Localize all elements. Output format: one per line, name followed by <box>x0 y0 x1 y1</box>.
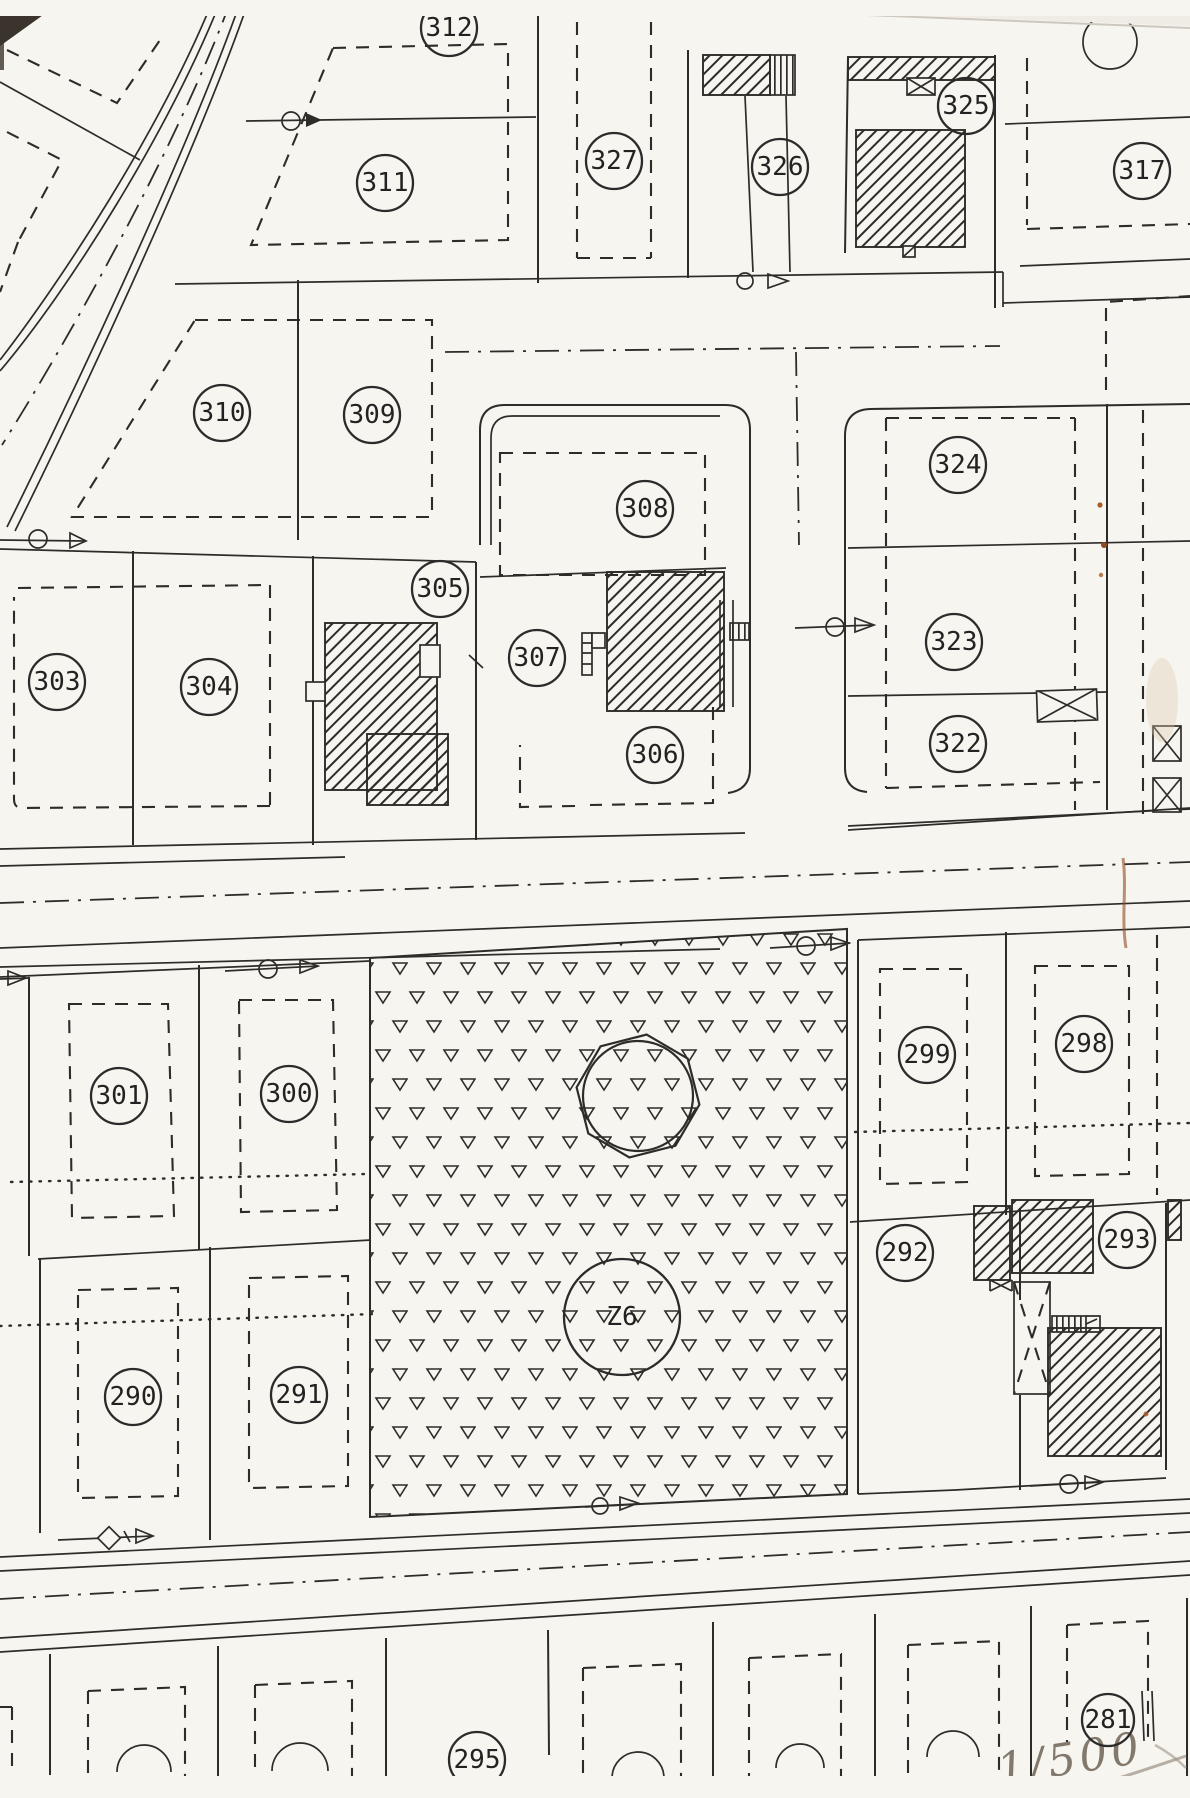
building-326 <box>703 55 795 95</box>
parcel-label-326: 326 <box>752 139 808 195</box>
svg-text:310: 310 <box>199 398 246 428</box>
parcel-label-325: 325 <box>938 78 994 134</box>
svg-text:293: 293 <box>1104 1225 1151 1255</box>
parcels-324-323-322 <box>848 404 1190 826</box>
parcel-label-324: 324 <box>930 437 986 493</box>
parcel-label-295: 295 <box>449 1732 505 1788</box>
parcels-299-298 <box>855 932 1190 1222</box>
parcel-outline-308 <box>500 453 705 575</box>
parcel-label-306: 306 <box>627 727 683 783</box>
triangle-pattern-area <box>370 929 847 1517</box>
svg-text:281: 281 <box>1085 1705 1132 1735</box>
survey-point-arrow <box>795 618 874 636</box>
building-large <box>1048 1328 1161 1456</box>
parcel-label-308: 308 <box>617 481 673 537</box>
crossed-box-icon <box>1153 778 1181 812</box>
survey-point-arrow <box>0 971 30 985</box>
diagonal-road <box>0 0 249 531</box>
svg-text:301: 301 <box>96 1081 143 1111</box>
parcel-label-312: 312 <box>421 0 477 56</box>
corner-mark-icon <box>903 246 915 257</box>
survey-point-arrow <box>1030 1475 1103 1493</box>
stairs-icon <box>582 633 605 675</box>
cadastral-map-sheet: 1/500 3123113273263253173103093083243053… <box>0 0 1190 1798</box>
svg-text:305: 305 <box>417 574 464 604</box>
building-small <box>974 1206 1010 1280</box>
svg-text:327: 327 <box>591 146 638 176</box>
svg-text:326: 326 <box>757 152 804 182</box>
survey-diamond-arrow <box>58 1527 153 1550</box>
svg-text:290: 290 <box>110 1382 157 1412</box>
parcel-label-307: 307 <box>509 630 565 686</box>
svg-text:306: 306 <box>632 740 679 770</box>
crossed-box-icon <box>907 78 935 95</box>
crossed-box-icon <box>1036 689 1097 722</box>
survey-point-arrow <box>225 960 318 978</box>
bottom-road <box>0 1499 1190 1652</box>
survey-point-arrow <box>246 112 536 130</box>
svg-text:304: 304 <box>186 672 233 702</box>
bowtie-mark-icon <box>990 1280 1012 1291</box>
svg-text:324: 324 <box>935 450 982 480</box>
building-304-305 <box>306 623 448 805</box>
parcel-label-327: 327 <box>586 133 642 189</box>
parcel-label-305: 305 <box>412 561 468 617</box>
svg-text:309: 309 <box>349 400 396 430</box>
svg-text:291: 291 <box>276 1380 323 1410</box>
parcel-label-311: 311 <box>357 155 413 211</box>
parcels-301-300 <box>11 961 371 1517</box>
svg-text:308: 308 <box>622 494 669 524</box>
svg-text:312: 312 <box>426 13 473 43</box>
svg-text:Z6: Z6 <box>606 1302 637 1332</box>
svg-text:292: 292 <box>882 1238 929 1268</box>
svg-text:323: 323 <box>931 627 978 657</box>
parcel-label-310: 310 <box>194 385 250 441</box>
map-linework: 1/500 <box>0 0 1190 1798</box>
svg-text:299: 299 <box>904 1040 951 1070</box>
svg-text:325: 325 <box>943 91 990 121</box>
svg-text:295: 295 <box>454 1745 501 1775</box>
svg-text:311: 311 <box>362 168 409 198</box>
parcel-label-322: 322 <box>930 716 986 772</box>
parcel-label-291: 291 <box>271 1367 327 1423</box>
building-325 <box>848 57 995 257</box>
svg-text:322: 322 <box>935 729 982 759</box>
svg-text:317: 317 <box>1119 156 1166 186</box>
parcel-label-300: 300 <box>261 1066 317 1122</box>
parcel-label-292: 292 <box>877 1225 933 1281</box>
parcel-label-303: 303 <box>29 654 85 710</box>
survey-point-arrow <box>0 530 86 548</box>
parcel-labels-layer: 3123113273263253173103093083243053073033… <box>29 0 1170 1788</box>
svg-text:307: 307 <box>514 643 561 673</box>
parcel-label-301: 301 <box>91 1068 147 1124</box>
parcel-label-298: 298 <box>1056 1016 1112 1072</box>
parcel-label-293: 293 <box>1099 1212 1155 1268</box>
svg-text:303: 303 <box>34 667 81 697</box>
svg-text:300: 300 <box>266 1079 313 1109</box>
parcel-label-304: 304 <box>181 659 237 715</box>
parcel-label-290: 290 <box>105 1369 161 1425</box>
parcel-label-299: 299 <box>899 1027 955 1083</box>
parcel-label-317: 317 <box>1114 143 1170 199</box>
building-edge <box>1168 1200 1181 1240</box>
building-small <box>1012 1200 1093 1273</box>
parcel-label-309: 309 <box>344 387 400 443</box>
svg-text:298: 298 <box>1061 1029 1108 1059</box>
building-307 <box>582 572 749 711</box>
scanned-map-page: 1/500 3123113273263253173103093083243053… <box>0 0 1190 1798</box>
parcel-label-323: 323 <box>926 614 982 670</box>
